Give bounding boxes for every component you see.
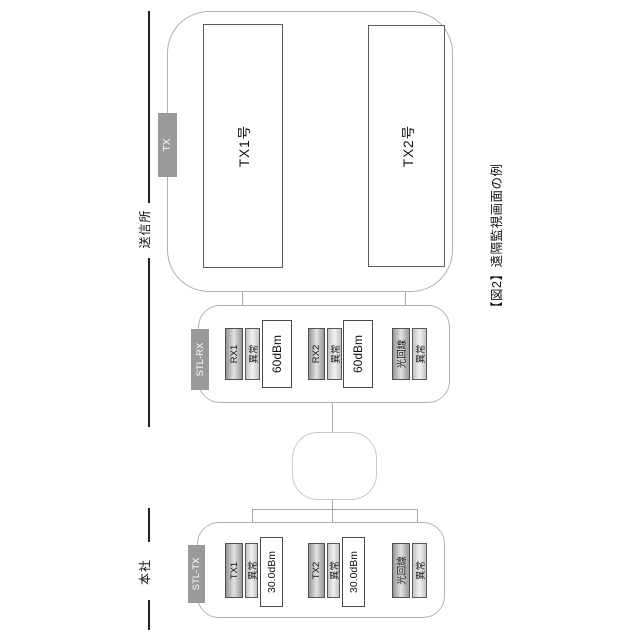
transmitter-2-box: TX2号: [368, 25, 445, 267]
boundary-line-segment: [148, 258, 150, 427]
rx-optical-line-status-box: 異常: [412, 328, 427, 380]
stl-rx-badge: STL-RX: [191, 329, 209, 390]
tx1-level-box: 30.0dBm: [260, 537, 283, 607]
stl-tx-badge: STL-TX: [188, 545, 205, 603]
tx-optical-line-status-box: 異常: [412, 543, 427, 598]
figure-caption: 【図2】遠隔監視画面の例: [486, 164, 505, 314]
rx1-status-box: 異常: [245, 328, 260, 380]
transmit-station-label: 送信所: [136, 200, 153, 258]
rx-optical-line-box: 光回線: [392, 328, 410, 380]
rx1-level-box: 60dBm: [262, 320, 292, 388]
tx1-status-box: 異常: [245, 543, 258, 598]
rx1-name-box: RX1: [225, 328, 243, 380]
rx2-name-box: RX2: [308, 328, 325, 380]
rx2-status-box: 異常: [327, 328, 342, 380]
tx2-name-box: TX2: [308, 543, 325, 598]
tx-antenna-badge: TX: [158, 113, 177, 177]
network-cloud: [292, 432, 377, 500]
rx2-level-box: 60dBm: [343, 320, 373, 388]
tx1-name-box: TX1: [225, 543, 243, 598]
bus-line: [252, 509, 418, 510]
transmitter-1-box: TX1号: [203, 24, 283, 268]
headquarters-label: 本社: [136, 547, 153, 597]
tx2-level-box: 30.0dBm: [342, 537, 365, 607]
boundary-line-segment: [148, 11, 150, 203]
patent-figure-page: 本社 送信所 TX TX1号 TX2号 STL-RX RX1 異常 60dBm …: [0, 0, 640, 640]
tx2-status-box: 異常: [327, 543, 340, 598]
boundary-line-segment: [148, 508, 150, 542]
tx-optical-line-box: 光回線: [392, 543, 410, 598]
boundary-line-segment: [148, 600, 150, 630]
link-stlrx-to-cloud: [332, 403, 333, 432]
diagram-stage: 本社 送信所 TX TX1号 TX2号 STL-RX RX1 異常 60dBm …: [0, 0, 640, 640]
